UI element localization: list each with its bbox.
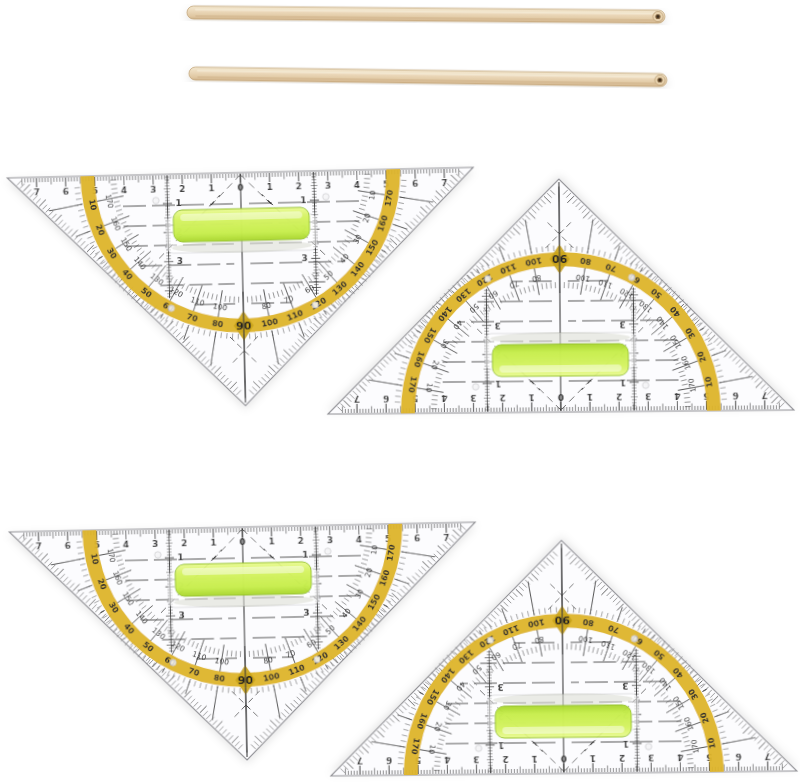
product-photo: 1231237654321012345671017020160301504014… <box>0 0 800 782</box>
svg-text:3: 3 <box>325 180 331 190</box>
svg-text:6: 6 <box>412 178 418 188</box>
svg-text:1: 1 <box>208 183 214 193</box>
svg-text:80: 80 <box>534 635 545 646</box>
svg-text:3: 3 <box>177 256 183 266</box>
svg-text:1: 1 <box>620 377 626 387</box>
svg-text:6: 6 <box>732 391 738 401</box>
svg-text:3: 3 <box>152 538 158 548</box>
svg-text:1: 1 <box>623 739 629 749</box>
svg-text:10: 10 <box>424 382 434 393</box>
stick-top <box>187 6 665 23</box>
svg-text:3: 3 <box>619 319 625 329</box>
svg-text:7: 7 <box>441 177 447 187</box>
svg-text:1: 1 <box>531 754 537 764</box>
svg-text:4: 4 <box>123 539 129 549</box>
svg-text:7: 7 <box>354 394 360 404</box>
svg-text:80: 80 <box>211 319 224 330</box>
svg-text:4: 4 <box>677 753 683 763</box>
svg-text:3: 3 <box>303 608 309 618</box>
svg-text:80: 80 <box>579 256 592 267</box>
svg-text:1: 1 <box>300 195 306 205</box>
svg-text:7: 7 <box>35 541 41 551</box>
svg-text:2: 2 <box>499 393 505 403</box>
svg-text:1: 1 <box>268 536 274 546</box>
svg-text:1: 1 <box>302 550 308 560</box>
svg-text:80: 80 <box>263 655 274 666</box>
svg-text:3: 3 <box>497 682 503 692</box>
svg-text:10: 10 <box>367 190 377 201</box>
svg-text:7: 7 <box>443 532 449 542</box>
svg-text:1: 1 <box>528 393 534 403</box>
svg-text:4: 4 <box>444 755 450 765</box>
svg-text:1: 1 <box>590 754 596 764</box>
svg-text:6: 6 <box>65 540 71 550</box>
svg-text:10: 10 <box>369 544 379 555</box>
svg-text:7: 7 <box>761 391 767 401</box>
svg-text:3: 3 <box>470 393 476 403</box>
svg-text:3: 3 <box>645 392 651 402</box>
svg-text:80: 80 <box>261 301 272 312</box>
svg-text:2: 2 <box>181 538 187 548</box>
svg-text:2: 2 <box>616 392 622 402</box>
svg-text:7: 7 <box>34 187 40 197</box>
svg-text:6: 6 <box>386 756 392 766</box>
svg-text:80: 80 <box>213 673 226 684</box>
svg-text:3: 3 <box>150 184 156 194</box>
svg-text:80: 80 <box>582 617 595 628</box>
svg-text:4: 4 <box>674 392 680 402</box>
svg-text:2: 2 <box>296 181 302 191</box>
svg-text:4: 4 <box>121 185 127 195</box>
svg-text:2: 2 <box>179 183 185 193</box>
svg-text:3: 3 <box>473 755 479 765</box>
svg-text:1: 1 <box>177 552 183 562</box>
svg-text:10: 10 <box>427 744 437 755</box>
svg-text:1: 1 <box>587 392 593 402</box>
svg-text:1: 1 <box>175 198 181 208</box>
svg-text:7: 7 <box>357 756 363 766</box>
svg-text:4: 4 <box>354 179 360 189</box>
scene-canvas: 1231237654321012345671017020160301504014… <box>0 0 800 782</box>
svg-text:7: 7 <box>764 752 770 762</box>
svg-text:2: 2 <box>502 755 508 765</box>
svg-text:4: 4 <box>441 394 447 404</box>
svg-text:6: 6 <box>383 394 389 404</box>
svg-text:3: 3 <box>648 753 654 763</box>
svg-text:80: 80 <box>531 273 542 284</box>
svg-text:3: 3 <box>622 680 628 690</box>
svg-text:6: 6 <box>63 186 69 196</box>
svg-text:1: 1 <box>498 740 504 750</box>
svg-text:3: 3 <box>301 254 307 264</box>
svg-text:1: 1 <box>266 181 272 191</box>
svg-text:2: 2 <box>298 535 304 545</box>
svg-text:6: 6 <box>735 752 741 762</box>
svg-text:1: 1 <box>210 537 216 547</box>
svg-text:3: 3 <box>327 535 333 545</box>
svg-text:6: 6 <box>414 533 420 543</box>
svg-text:3: 3 <box>178 611 184 621</box>
svg-text:1: 1 <box>495 378 501 388</box>
svg-text:4: 4 <box>356 534 362 544</box>
stick-bottom <box>189 67 667 87</box>
svg-text:2: 2 <box>619 753 625 763</box>
svg-text:3: 3 <box>495 320 501 330</box>
